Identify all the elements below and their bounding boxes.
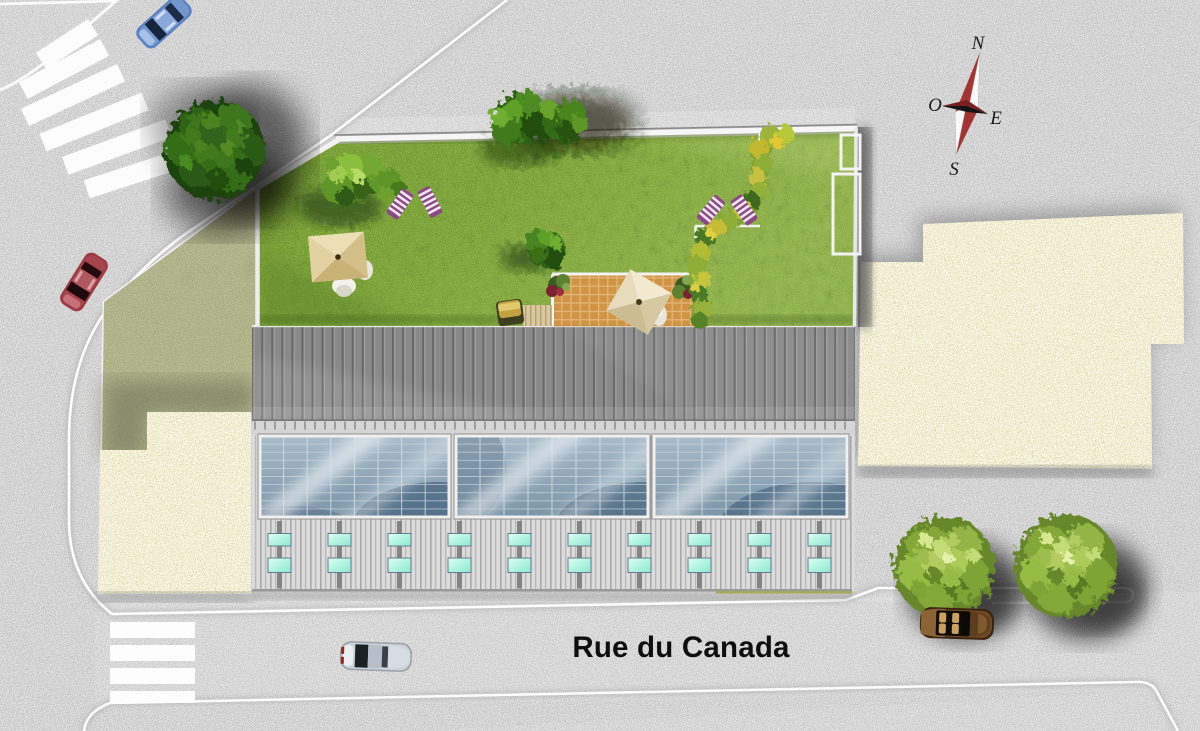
svg-text:Rue du Canada: Rue du Canada [572, 631, 790, 664]
svg-text:O: O [928, 95, 942, 116]
svg-text:E: E [989, 108, 1002, 129]
svg-text:N: N [971, 33, 986, 54]
svg-text:S: S [949, 159, 959, 180]
